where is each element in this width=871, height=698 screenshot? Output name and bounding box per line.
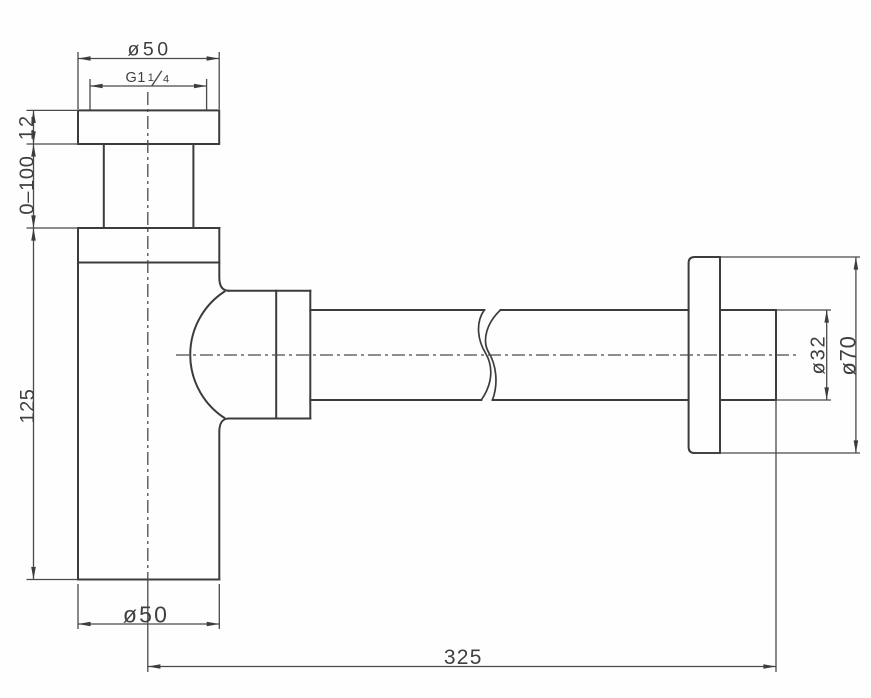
svg-text:ø50: ø50	[123, 602, 169, 628]
svg-text:G1: G1	[126, 70, 146, 86]
svg-text:125: 125	[17, 389, 39, 424]
svg-text:ø70: ø70	[836, 335, 861, 375]
svg-text:12: 12	[16, 114, 38, 140]
svg-text:4: 4	[163, 74, 169, 86]
svg-text:325: 325	[444, 646, 483, 669]
svg-text:ø50: ø50	[127, 39, 171, 61]
svg-text:0–100: 0–100	[17, 155, 39, 214]
svg-text:ø32: ø32	[808, 335, 830, 375]
svg-text:1: 1	[148, 72, 154, 84]
